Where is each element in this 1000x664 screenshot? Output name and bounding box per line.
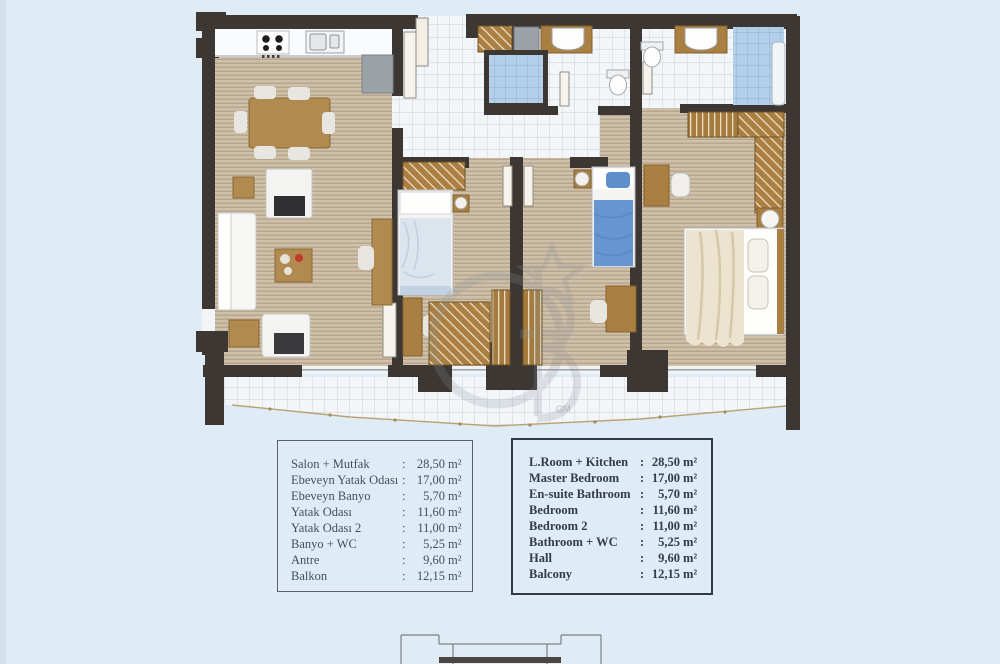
svg-text:GM: GM xyxy=(556,404,571,414)
